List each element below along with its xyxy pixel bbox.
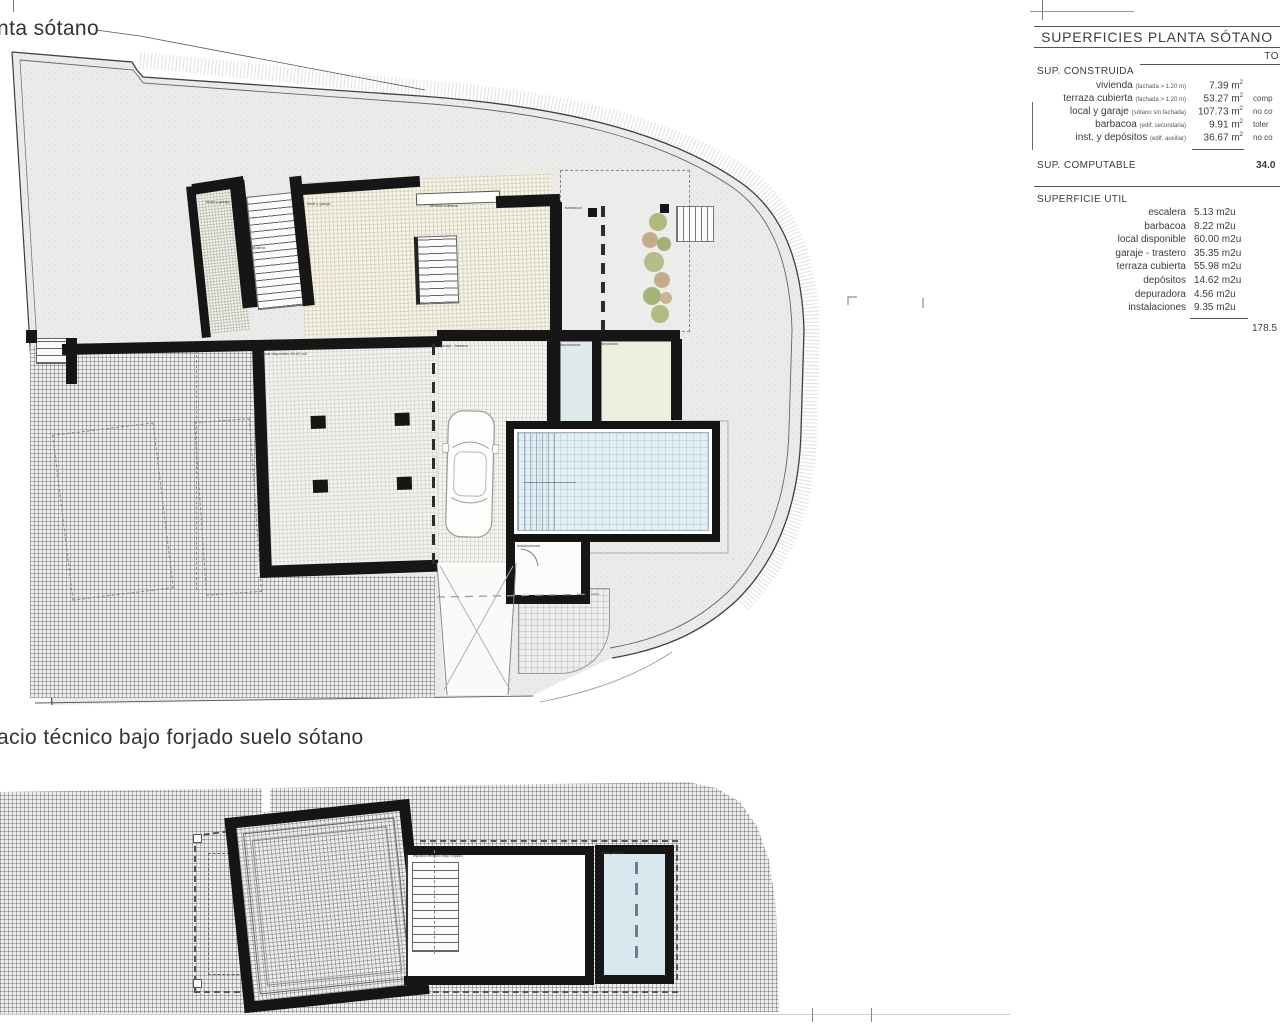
room-label: local y garaje xyxy=(206,200,230,204)
plan-title-top: nta sótano xyxy=(0,17,99,41)
util-row: terraza cubierta55.98 m2u xyxy=(1034,261,1280,275)
room-label: depósitos xyxy=(601,342,618,346)
sheet-bottom-line xyxy=(0,1014,1010,1015)
construida-row: vivienda (fachada > 1.20 m)7.39 m2 xyxy=(1034,80,1280,93)
terrace-dashed-divider xyxy=(601,206,605,330)
construida-bracket xyxy=(1032,102,1033,150)
column-3 xyxy=(313,479,328,493)
construida-annotation: no co xyxy=(1253,107,1273,116)
exterior-stair xyxy=(676,206,714,242)
util-name: terraza cubierta xyxy=(1117,261,1186,272)
util-row: garaje - trastero35.35 m2u xyxy=(1034,248,1280,262)
section-util: SUPERFICIE UTIL xyxy=(1037,194,1127,205)
excavation-dash-right xyxy=(676,845,678,980)
util-row: depuradora4.56 m2u xyxy=(1034,289,1280,303)
construida-row: local y garaje (sótano sin fachada)107.7… xyxy=(1034,106,1280,119)
wall-mid-right xyxy=(437,330,680,341)
room-label: barbacoa xyxy=(565,206,582,210)
util-row: instalaciones9.35 m2u xyxy=(1034,302,1280,316)
tech-stair-centerline xyxy=(434,850,435,954)
room-label: espacio técnico bajo forjado xyxy=(413,854,463,858)
room-label: vaso piscina xyxy=(601,851,623,855)
plan-title-bottom: acio técnico bajo forjado suelo sótano xyxy=(0,726,364,750)
construida-value: 7.39 m2 xyxy=(1163,80,1243,91)
rule-mid xyxy=(1034,186,1280,187)
excavation-tick-2 xyxy=(193,979,202,988)
room-local-disponible xyxy=(252,340,444,578)
sheet-tick-2 xyxy=(871,1008,872,1022)
tech-room-middle xyxy=(404,846,594,987)
util-rows: escalera5.13 m2ubarbacoa8.22 m2ulocal di… xyxy=(1034,207,1280,316)
room-label: instalaciones xyxy=(517,544,540,548)
util-row: escalera5.13 m2u xyxy=(1034,207,1280,221)
room-label: escalera xyxy=(250,246,265,250)
rule-under-total xyxy=(1140,64,1280,65)
pool-basin-dashed-line xyxy=(635,862,638,967)
table-total-header: TO xyxy=(1264,51,1279,62)
pool-water xyxy=(517,432,709,531)
room-label: local disponible 60.00 m2 xyxy=(262,352,307,356)
boundary-post xyxy=(26,330,37,343)
construida-row: terraza cubierta (fachada > 1.20 m)53.27… xyxy=(1034,93,1280,106)
terrace-column-1 xyxy=(588,208,597,217)
wall-garaje-right xyxy=(547,341,560,424)
construida-value: 36.67 m2 xyxy=(1163,132,1243,143)
room-label: terraza cubierta xyxy=(430,204,458,208)
tech-room-left-outline-2 xyxy=(252,826,403,985)
wall-dep-divider xyxy=(592,341,601,422)
util-total: 178.5 xyxy=(1252,323,1277,334)
room-depositos xyxy=(601,341,673,422)
rule-under-title xyxy=(1034,47,1280,48)
setback-dashed-line xyxy=(196,350,197,590)
util-value: 9.35 m2u xyxy=(1194,302,1236,313)
tech-wall-bottom xyxy=(404,976,594,985)
util-name: escalera xyxy=(1148,207,1186,218)
column-4 xyxy=(397,477,412,491)
sheet-tick-1 xyxy=(812,1008,813,1022)
util-value: 14.62 m2u xyxy=(1194,275,1241,286)
construida-value: 107.73 m2 xyxy=(1163,106,1243,117)
hatch-area-below-local xyxy=(258,576,435,698)
util-name: depósitos xyxy=(1143,275,1186,286)
car xyxy=(440,407,499,540)
sheet-mark-table-h xyxy=(1030,11,1134,12)
construida-annotation: toler xyxy=(1253,120,1269,129)
rule-top xyxy=(1034,26,1280,27)
construida-value: 53.27 m2 xyxy=(1163,93,1243,104)
construida-row: barbacoa (edif. secundaria)9.91 m2toler xyxy=(1034,119,1280,132)
util-name: garaje - trastero xyxy=(1115,248,1186,259)
tech-stair xyxy=(412,862,459,952)
pool-basin xyxy=(595,845,674,984)
section-computable: SUP. COMPUTABLE xyxy=(1037,160,1136,171)
util-row: barbacoa8.22 m2u xyxy=(1034,221,1280,235)
computable-value: 34.0 xyxy=(1256,160,1275,171)
room-label: garaje - trastero xyxy=(440,344,468,348)
util-name: instalaciones xyxy=(1128,302,1186,313)
driveway xyxy=(437,563,517,695)
basement-plan-sheet: nta sótano acio técnico bajo forjado sue… xyxy=(0,0,1280,1024)
util-value: 55.98 m2u xyxy=(1194,261,1241,272)
planting-bed xyxy=(640,210,676,330)
construida-annotation: comp xyxy=(1253,94,1273,103)
tech-room-left xyxy=(224,799,429,1013)
util-row: depósitos14.62 m2u xyxy=(1034,275,1280,289)
util-value: 35.35 m2u xyxy=(1194,248,1241,259)
wall-terrace-left xyxy=(550,202,562,336)
util-value: 60.00 m2u xyxy=(1194,234,1241,245)
column-1 xyxy=(310,415,325,429)
util-name: local disponible xyxy=(1118,234,1186,245)
util-name: depuradora xyxy=(1135,289,1186,300)
table-title: SUPERFICIES PLANTA SÓTANO xyxy=(1034,29,1280,45)
service-gap xyxy=(262,780,270,812)
section-construida: SUP. CONSTRUIDA xyxy=(1037,66,1134,77)
construida-underline xyxy=(1192,149,1244,150)
util-value: 5.13 m2u xyxy=(1194,207,1236,218)
util-row: local disponible60.00 m2u xyxy=(1034,234,1280,248)
room-label: local y garaje xyxy=(307,202,331,206)
construida-annotation: no co xyxy=(1253,133,1273,142)
column-2 xyxy=(394,413,409,427)
room-depuradora xyxy=(560,341,594,425)
excavation-tick-1 xyxy=(193,834,202,843)
util-underline xyxy=(1190,318,1248,319)
sheet-mark-topleft xyxy=(13,0,14,12)
local-garage-dashed-divider xyxy=(432,344,435,572)
room-label: depuradora xyxy=(560,343,580,347)
pool-handrail xyxy=(524,482,576,483)
util-value: 4.56 m2u xyxy=(1194,289,1236,300)
sheet-mark-table-v xyxy=(1042,0,1043,20)
excavation-dash-left xyxy=(194,836,196,992)
util-name: barbacoa xyxy=(1144,221,1186,232)
pool xyxy=(506,421,720,542)
construida-value: 9.91 m2 xyxy=(1163,119,1243,130)
tech-wall-right xyxy=(585,846,594,985)
excavation-dash-top xyxy=(420,840,678,842)
wall-depositos-right xyxy=(671,339,682,420)
room-instalaciones xyxy=(506,540,590,604)
secondary-stair xyxy=(414,235,459,304)
setback-dashed-rect-1 xyxy=(52,422,174,600)
construida-row: inst. y depósitos (edif. auxiliar)36.67 … xyxy=(1034,132,1280,145)
util-value: 8.22 m2u xyxy=(1194,221,1236,232)
construida-rows: vivienda (fachada > 1.20 m)7.39 m2terraz… xyxy=(1034,80,1280,145)
